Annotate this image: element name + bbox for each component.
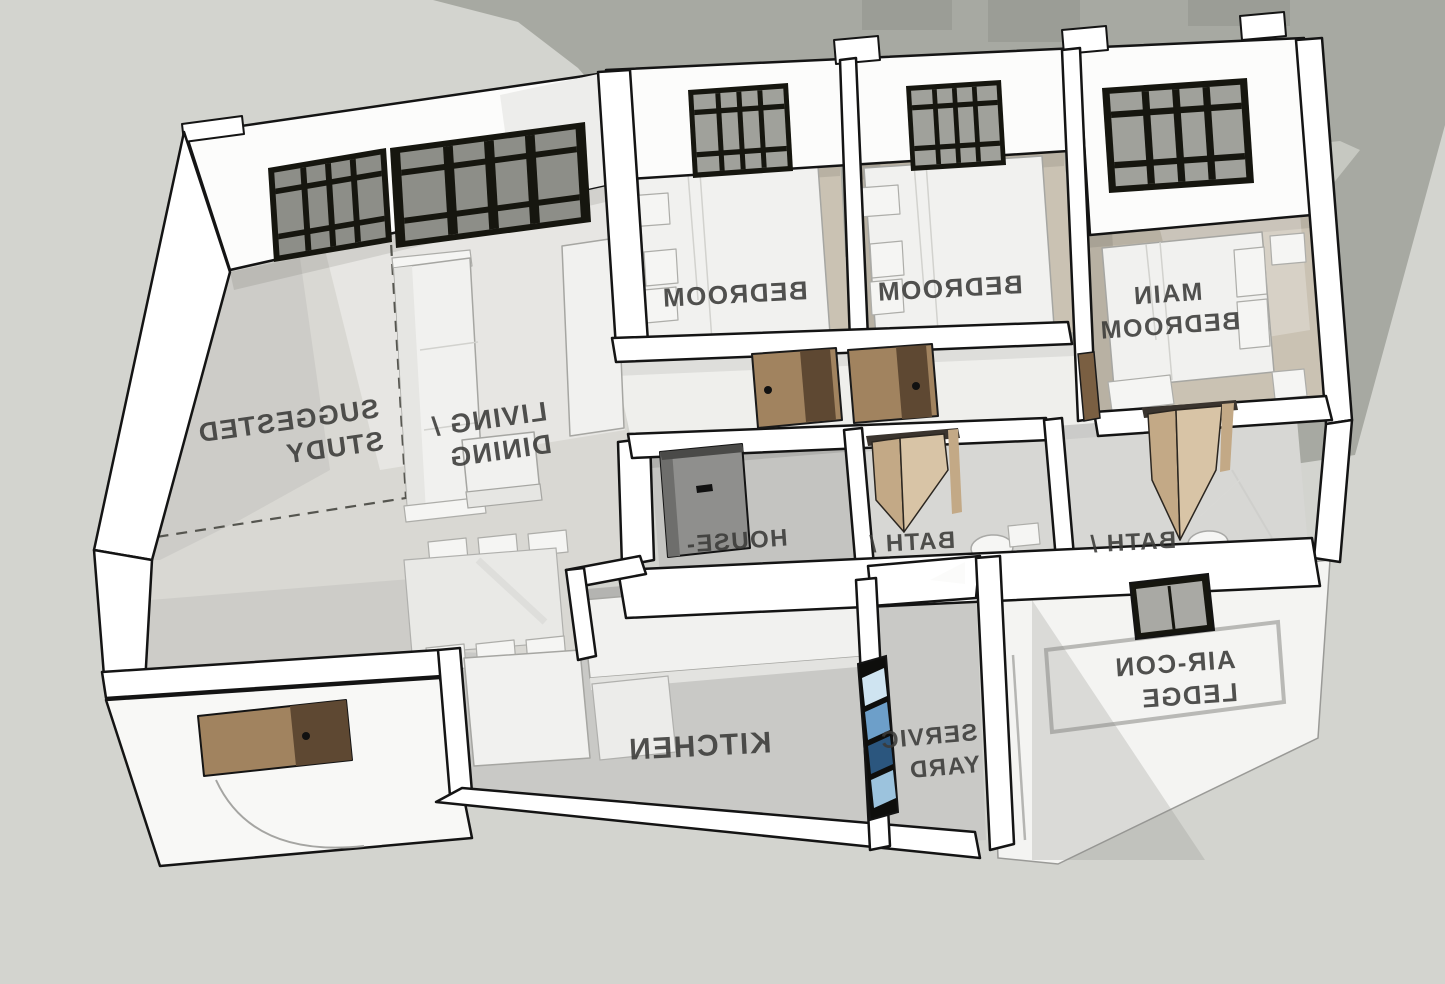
label-main-bedroom-line1: MAIN — [1132, 278, 1204, 311]
wall-left-lower — [94, 550, 152, 684]
toilet-tank — [1008, 523, 1040, 547]
door-stile — [800, 349, 836, 422]
kitchen-counter-left — [464, 650, 590, 766]
label-bath-1: BATH / — [867, 527, 956, 559]
bedroom-1-window-icon — [688, 83, 793, 178]
floorplan-canvas: BEDROOM BEDROOM MAIN BEDROOM SUGGESTED S… — [0, 0, 1445, 984]
pillow — [644, 249, 678, 286]
door-stile — [896, 345, 932, 419]
label-bath-2: BATH / — [1088, 527, 1177, 559]
pillow — [1234, 247, 1267, 297]
bedroom-2-window-icon — [906, 80, 1006, 171]
pillow — [870, 241, 904, 278]
bedroom-1-door — [752, 348, 842, 428]
bedside-table — [858, 185, 900, 217]
bedside-table — [1272, 369, 1307, 399]
wardrobe — [1270, 233, 1306, 265]
wall-notch — [1240, 12, 1286, 40]
main-bedroom-window-icon — [1102, 78, 1254, 193]
floorplan-scene: BEDROOM BEDROOM MAIN BEDROOM SUGGESTED S… — [0, 0, 1445, 984]
shadow-block — [862, 0, 952, 30]
bedroom-2-door — [848, 344, 938, 423]
pillow — [1237, 299, 1270, 349]
door-handle-icon — [302, 732, 310, 740]
entrance-door-stile — [290, 700, 352, 766]
door-handle-icon — [764, 386, 772, 394]
bed-bench — [1108, 375, 1174, 411]
door-handle-icon — [912, 382, 920, 390]
living-window-1-icon — [268, 148, 392, 262]
